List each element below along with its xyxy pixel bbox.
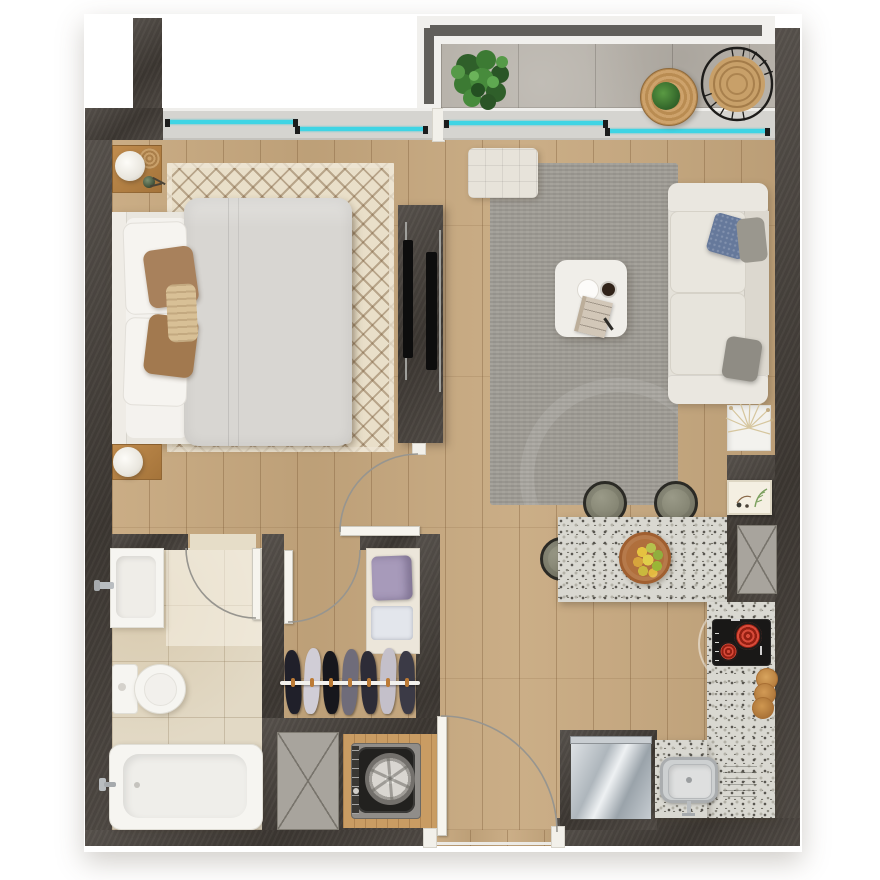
bathtub-spout (104, 782, 116, 787)
kitchen-faucet-handle (682, 813, 695, 816)
coffee-cup (600, 281, 617, 298)
door-jamb (423, 828, 437, 848)
cooktop-burner-large (734, 622, 762, 650)
sink-drain (686, 777, 692, 783)
cooktop-corner-mark (731, 619, 740, 621)
bed-duvet (184, 198, 352, 446)
botanical-print-icon (729, 482, 770, 513)
sofa-pillow-grey (721, 335, 763, 382)
bedroom-window-stop (423, 126, 428, 134)
balcony-door-stop (605, 128, 610, 136)
toilet-seat-inner (144, 673, 177, 706)
bedroom-window-stop (295, 126, 300, 134)
pillow-tan-lumbar (166, 283, 199, 342)
cooktop-corner-mark (760, 646, 762, 655)
bathtub-basin (123, 754, 247, 818)
bathtub-drain (134, 782, 140, 788)
sink-basin (116, 556, 156, 618)
door-jamb (412, 443, 426, 455)
wall-top-column (133, 18, 162, 113)
bedside-lamp-bottom (113, 447, 143, 477)
entry-threshold-line (433, 842, 557, 845)
entry-door-leaf (437, 716, 447, 836)
fruit-bowl (619, 532, 671, 584)
bedroom-window-pane-2 (296, 127, 424, 131)
tv-living (426, 252, 437, 370)
folded-clothes-purple (371, 555, 413, 600)
bedroom-window-pane-1 (168, 120, 296, 124)
bedside-lamp-top (115, 151, 145, 181)
cooktop-burner-small (719, 642, 738, 661)
wall-right (775, 28, 800, 846)
floor-plan (0, 0, 880, 880)
tv-bedroom (403, 240, 413, 358)
bathroom-door-leaf (252, 548, 261, 620)
wall-bottom-left (85, 830, 433, 846)
duct-shaft-kitchen (737, 525, 777, 594)
hanger-hook (348, 678, 352, 687)
balcony-railing-glass-top (430, 25, 762, 36)
hanger-hook (291, 678, 295, 687)
wall-art (727, 480, 772, 515)
rattan-hanging-chair (700, 46, 774, 122)
plant-foliage-icon (438, 38, 526, 124)
dried-flowers-icon (728, 406, 770, 450)
hanger-hook (329, 678, 333, 687)
cooktop-controls (715, 625, 719, 661)
washer-control-panel (352, 746, 359, 814)
wall-left (85, 140, 112, 846)
sink-faucet (98, 582, 114, 589)
sofa-pillow-grey (736, 217, 768, 264)
door-jamb (551, 826, 565, 848)
hanger-hook (405, 678, 409, 687)
bedroom-door-leaf (340, 526, 420, 536)
drainboard-grooves (723, 763, 757, 797)
hanger-hook (386, 678, 390, 687)
dried-flower-planter (727, 405, 771, 451)
hanging-chair-icon (700, 46, 774, 122)
wall-top-left-corner (85, 108, 163, 140)
folded-shirt (371, 606, 413, 640)
side-table-plant (652, 82, 680, 110)
shower-zone (166, 548, 262, 646)
bathroom-door-threshold (190, 534, 256, 550)
balcony-door-stop (765, 128, 770, 136)
sofa-armrest-top (668, 183, 768, 212)
hanger-hook (310, 678, 314, 687)
toilet-flush-button (118, 683, 126, 691)
cutting-board (752, 697, 774, 719)
balcony-plant (438, 38, 526, 124)
tv-mount-rail (439, 230, 441, 392)
bedroom-window-stop (165, 119, 170, 127)
refrigerator-top-edge (570, 736, 652, 744)
hanger-hook (367, 678, 371, 687)
balcony-door-pane-2 (607, 129, 769, 133)
sink-faucet-handle (94, 580, 100, 591)
balcony-door-stop (603, 120, 608, 128)
refrigerator (570, 740, 652, 820)
ottoman (468, 148, 538, 198)
washer-knob (353, 788, 359, 794)
closet-door-leaf (284, 550, 293, 624)
balcony-railing-glass-left (424, 28, 434, 104)
duct-shaft-left (277, 732, 339, 830)
